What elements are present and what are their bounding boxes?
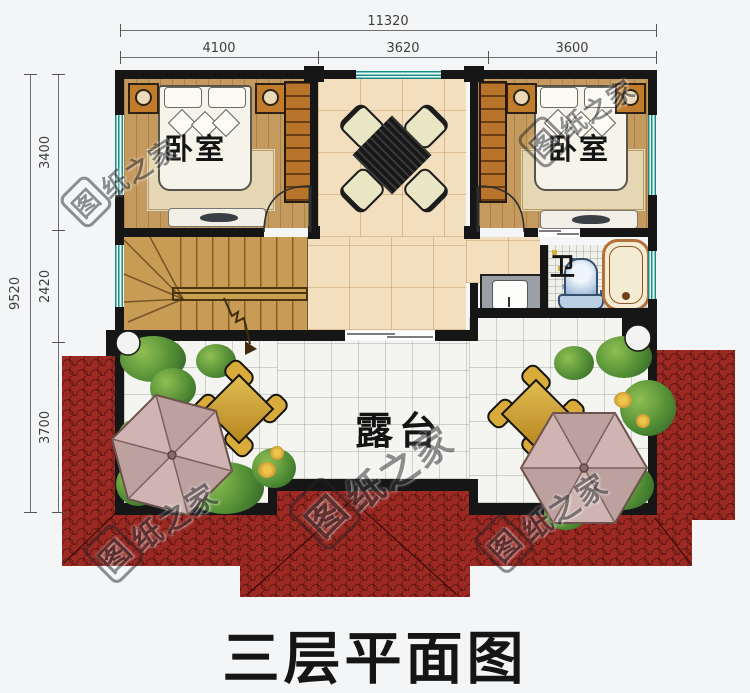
nightstand [255, 83, 286, 114]
door-panel [539, 230, 561, 232]
wall [115, 228, 264, 237]
dim-tick [120, 51, 121, 64]
sink-basin [492, 280, 528, 310]
drain-icon [622, 292, 630, 300]
wall [470, 79, 478, 228]
dim-line [58, 74, 59, 512]
wall [524, 228, 538, 237]
nightstand [128, 83, 159, 114]
wall-pier [308, 226, 320, 239]
wall-pier [464, 226, 480, 239]
nightstand [506, 83, 537, 114]
dim-tick [318, 51, 319, 64]
flower [270, 446, 284, 460]
roof-right-wing [655, 350, 735, 520]
bathtub [602, 239, 650, 311]
dim-segment: 3700 [38, 397, 53, 457]
door-panel [347, 333, 395, 335]
lamp-icon [135, 89, 152, 106]
bench-cushion [572, 215, 610, 224]
sliding-door-terrace [345, 331, 435, 340]
wall [310, 79, 318, 228]
dim-line [120, 57, 656, 58]
faucet-icon [508, 297, 510, 307]
pillow [208, 87, 246, 108]
room-label-bathroom: 卫 [550, 247, 577, 283]
dim-tick [656, 24, 657, 37]
plant [554, 346, 594, 380]
wall [470, 308, 478, 341]
dim-segment: 3620 [373, 41, 433, 56]
dim-segment: 3400 [38, 122, 53, 182]
lamp-icon [262, 89, 279, 106]
dim-tick [24, 512, 37, 513]
dim-segment: 3600 [542, 41, 602, 56]
dim-total-height: 9520 [8, 263, 23, 323]
dresser-bench [168, 208, 266, 227]
handrail-line [174, 292, 306, 294]
plant [150, 368, 196, 408]
flower [636, 414, 650, 428]
door-panel [387, 336, 433, 338]
plant [620, 380, 676, 436]
dresser-bench [540, 210, 638, 229]
floor-plan-canvas: 卧室 卧室 卫 露台 图纸之家 图纸之家 图纸之家 图纸之家 图纸之家 1132… [0, 0, 750, 693]
dim-tick [488, 51, 489, 64]
window [648, 250, 657, 300]
wardrobe [479, 81, 507, 203]
pillow [164, 87, 202, 108]
plant [596, 336, 652, 378]
wall [648, 70, 657, 341]
wall [580, 228, 657, 237]
dim-segment: 2420 [38, 256, 53, 316]
stair-handrail [172, 287, 308, 301]
hall-floor-lower [307, 237, 466, 330]
dim-tick [120, 24, 121, 37]
bench-cushion [200, 213, 238, 222]
flower [258, 462, 276, 478]
window [648, 114, 657, 196]
wardrobe [284, 81, 312, 203]
page-title: 三层平面图 [60, 613, 690, 693]
window [115, 244, 124, 308]
window [355, 70, 442, 79]
dim-segment: 4100 [189, 41, 249, 56]
dim-tick [52, 74, 65, 75]
stair-hall-divider [307, 237, 308, 330]
wall [540, 245, 548, 308]
dim-tick [52, 230, 65, 231]
lamp-icon [513, 89, 530, 106]
dim-tick [656, 51, 657, 64]
dim-tick [24, 74, 37, 75]
stair-treads [180, 237, 307, 330]
dim-tick [52, 342, 65, 343]
dim-total-width: 11320 [358, 14, 418, 29]
dim-line [120, 30, 656, 31]
flower [614, 392, 632, 408]
dim-tick [52, 512, 65, 513]
sliding-door-bath [538, 229, 580, 237]
dim-line [30, 74, 31, 512]
door-panel [557, 233, 579, 235]
